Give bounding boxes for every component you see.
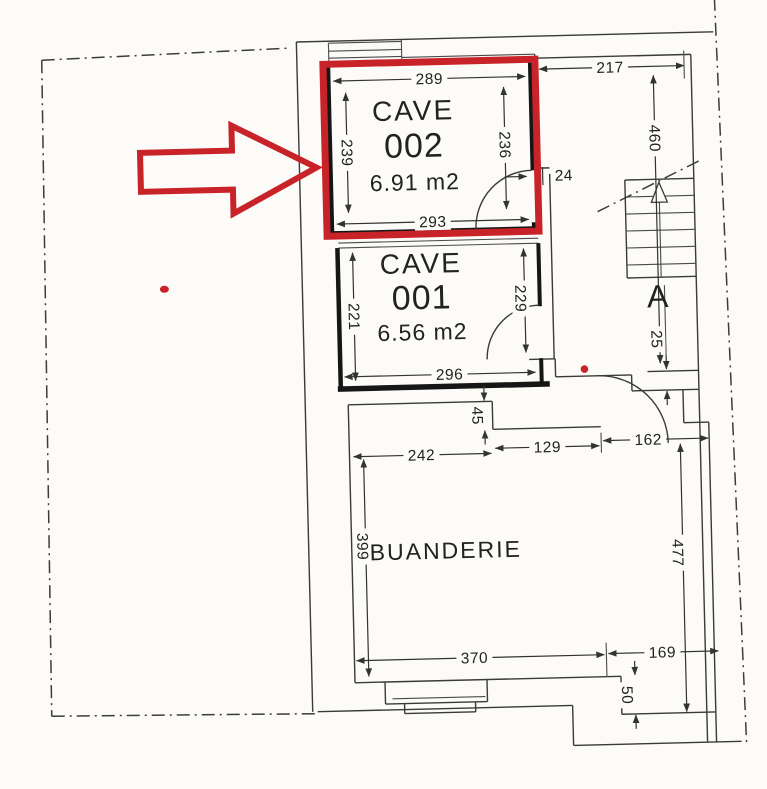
svg-text:236: 236 bbox=[495, 131, 513, 159]
svg-text:24: 24 bbox=[554, 167, 573, 184]
svg-text:25: 25 bbox=[647, 330, 664, 349]
svg-text:CAVE: CAVE bbox=[372, 94, 455, 127]
svg-text:169: 169 bbox=[648, 644, 676, 662]
svg-text:CAVE: CAVE bbox=[379, 247, 462, 280]
svg-text:50: 50 bbox=[618, 686, 635, 705]
svg-text:002: 002 bbox=[384, 126, 445, 165]
scanned-floor-plan-page: 289 293 239 236 217 bbox=[0, 0, 767, 789]
svg-text:293: 293 bbox=[419, 214, 447, 232]
svg-text:289: 289 bbox=[415, 71, 443, 89]
svg-text:370: 370 bbox=[461, 650, 489, 668]
section-marker-a: A bbox=[647, 278, 670, 315]
svg-text:296: 296 bbox=[436, 366, 464, 384]
svg-text:399: 399 bbox=[353, 533, 371, 561]
svg-text:001: 001 bbox=[391, 278, 452, 317]
svg-text:129: 129 bbox=[533, 439, 561, 457]
svg-text:221: 221 bbox=[344, 303, 362, 331]
svg-text:217: 217 bbox=[596, 59, 624, 77]
room-label-buanderie: BUANDERIE bbox=[369, 536, 522, 566]
svg-text:6.56 m2: 6.56 m2 bbox=[377, 318, 468, 346]
svg-text:45: 45 bbox=[468, 406, 485, 425]
svg-text:239: 239 bbox=[337, 139, 355, 167]
svg-text:229: 229 bbox=[511, 285, 529, 313]
svg-text:242: 242 bbox=[408, 447, 436, 465]
svg-text:460: 460 bbox=[645, 124, 663, 152]
svg-text:477: 477 bbox=[668, 539, 686, 567]
svg-text:6.91 m2: 6.91 m2 bbox=[369, 168, 460, 196]
svg-text:162: 162 bbox=[634, 431, 662, 449]
floor-plan-drawing: 289 293 239 236 217 bbox=[0, 0, 767, 789]
